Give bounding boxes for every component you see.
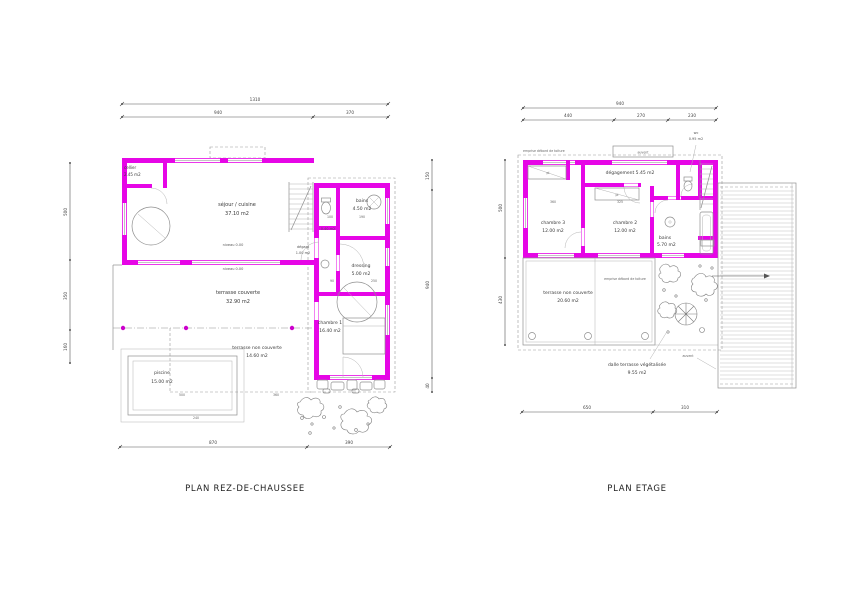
room-terrasse-couverte-area: 32.90 m2 [226,299,250,305]
ground-floor-plan: 1310 940 370 870 390 500 350 160 150 940… [63,97,433,494]
ground-dimension-lines: 1310 940 370 870 390 500 350 160 150 940… [63,97,433,449]
label-emprise-mid: emprise débord de toiture [604,277,646,281]
room-terrasse-couverte-name: terrasse couverte [216,290,260,296]
dim-int-2: 190 [359,215,365,219]
room-chambre3-area: 12.00 m2 [542,228,564,234]
ground-vegetation [297,397,386,434]
etage-terrace [523,258,718,345]
floor-plans-drawing: 1310 940 370 870 390 500 350 160 150 940… [0,0,849,600]
room-sous-escalier-area: 0.40 m2 [321,227,336,231]
dim-left-mid: 350 [63,292,68,300]
terrace-post-dot [121,326,125,330]
etage-fixtures [565,177,714,254]
etage-dim-int-1: 360 [550,200,556,204]
etage-plan-title: PLAN ETAGE [607,484,666,494]
etage-dim-w1: 440 [564,113,572,118]
room-piscine-name: piscine [154,370,170,376]
ground-plan-title: PLAN REZ-DE-CHAUSSEE [185,484,305,494]
room-wc-area: 0.95 m2 [689,137,704,141]
room-chambre1-name: chambre 1 [318,320,342,326]
room-bains-area: 4.50 m2 [353,206,372,212]
drawing-sheet: 1310 940 370 870 390 500 350 160 150 940… [0,0,849,600]
room-degagement-label: dégagement 5.45 m2 [606,169,655,176]
dim-right-mid: 940 [425,281,430,289]
etage-dim-int-2: 325 [617,200,623,204]
room-degagt-name: dégagt [297,245,310,249]
note-niveau-2: niveau 0.00 [223,267,244,271]
dim-pool-outer: 240 [193,416,199,420]
room-bains2-area: 5.70 m2 [657,242,676,248]
etage-vegetation [658,264,718,333]
room-wc-name: wc [694,131,699,135]
dim-width-main: 940 [214,110,222,115]
dim-right-top: 150 [425,172,430,180]
room-chambre2-name: chambre 2 [613,220,637,226]
room-degagt-area: 1.00 m2 [296,251,311,255]
terrace-post-dot [184,326,188,330]
label-auvent-top: auvent [637,151,649,155]
etage-dim-w3: 230 [688,113,696,118]
note-niveau-1: niveau 0.00 [223,243,244,247]
room-bains-name: bains [356,198,369,204]
room-terrasse2-area: 20.60 m2 [557,298,579,304]
ground-stairs [289,182,313,232]
room-sejour-name: séjour / cuisine [218,201,256,208]
etage-deck-hatched [712,183,796,388]
label-auvent-side: auvent [682,354,694,358]
room-dressing-area: 5.00 m2 [352,271,371,277]
dim-width-right: 370 [346,110,354,115]
room-terrasse-non-couverte-area: 14.60 m2 [246,353,268,359]
ground-paving-stones [317,380,385,393]
label-pl-1: pl [547,171,550,175]
room-dressing-name: dressing [351,263,370,269]
upper-floor-plan: 940 440 270 230 650 310 500 430 360 325 [498,101,796,494]
ground-room-labels: cellier 2.45 m2 séjour / cuisine 37.10 m… [124,165,371,385]
label-emprise-top: emprise débord de toiture [523,149,565,153]
terrace-post-dot [290,326,294,330]
room-sejour-area: 37.10 m2 [225,211,249,217]
dim-int-3: 250 [371,279,377,283]
room-bains2-name: bains [659,235,672,241]
dim-bottom-right: 390 [345,440,353,445]
etage-dim-total: 940 [616,101,624,106]
room-piscine-area: 15.00 m2 [151,379,173,385]
room-chambre2-area: 12.00 m2 [614,228,636,234]
direction-arrow [764,274,770,279]
room-dalle-area: 9.55 m2 [628,370,647,376]
room-chambre3-name: chambre 3 [541,220,565,226]
room-cellier-name: cellier [124,165,136,170]
dim-int-1: 100 [327,215,333,219]
label-pl-2: pl [616,193,619,197]
dim-left-bottom: 160 [63,343,68,351]
etage-dim-bottom-left: 650 [583,405,591,410]
dim-int-4: 90 [330,279,334,283]
dim-pool-width: 500 [179,393,185,397]
room-cellier-area: 2.45 m2 [124,172,141,177]
etage-dim-bottom-right: 310 [681,405,689,410]
ground-pool [121,349,244,422]
etage-dim-left-top: 500 [498,204,503,212]
room-dalle-name: dalle terrasse végétalisée [608,361,666,368]
room-terrasse2-name: terrasse non couverte [543,290,593,296]
etage-dim-left-bottom: 430 [498,296,503,304]
ground-terrace [113,265,314,392]
dim-bottom-left: 870 [209,440,217,445]
room-chambre1-area: 16.40 m2 [319,328,341,334]
dim-left-top: 500 [63,208,68,216]
room-terrasse-non-couverte-name: terrasse non couverte [232,345,282,351]
dim-total-width: 1310 [250,97,261,102]
dim-right-bottom: 40 [425,383,430,389]
etage-dim-w2: 270 [637,113,645,118]
dim-terrace-width: 360 [273,393,279,397]
